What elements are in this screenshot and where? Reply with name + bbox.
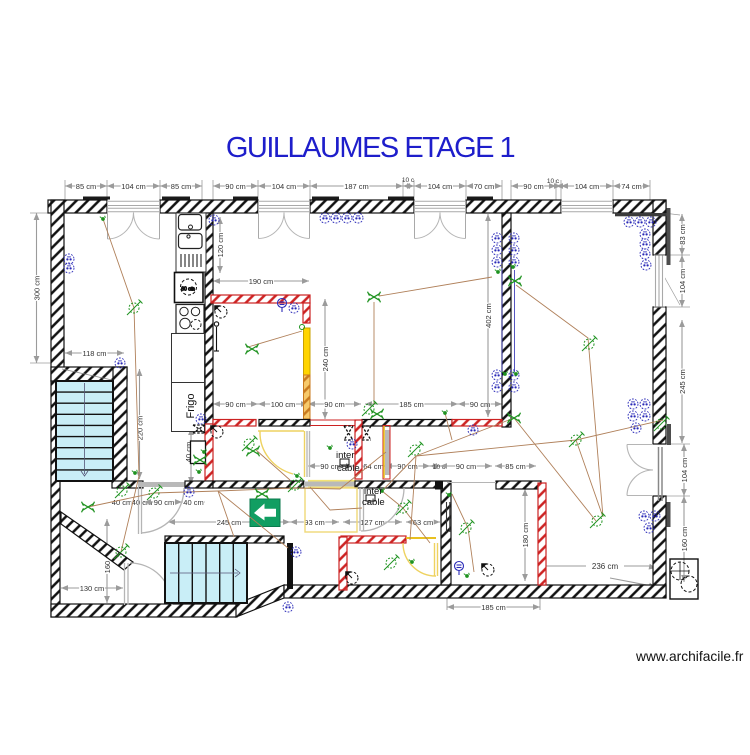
svg-text:74 cm: 74 cm xyxy=(621,182,641,191)
svg-text:90 cm: 90 cm xyxy=(470,400,490,409)
svg-text:90 cm: 90 cm xyxy=(225,400,245,409)
svg-text:60 cm: 60 cm xyxy=(181,287,195,293)
svg-text:190 cm: 190 cm xyxy=(249,277,274,286)
svg-text:10 c: 10 c xyxy=(547,178,560,185)
svg-text:240 cm: 240 cm xyxy=(321,347,330,372)
svg-text:63 cm: 63 cm xyxy=(413,518,433,527)
svg-text:130 cm: 130 cm xyxy=(80,584,105,593)
svg-text:104 cm: 104 cm xyxy=(428,182,453,191)
svg-text:187 cm: 187 cm xyxy=(344,182,369,191)
svg-text:104 cm: 104 cm xyxy=(678,269,687,294)
svg-text:220 cm: 220 cm xyxy=(136,416,145,441)
svg-text:104 cm: 104 cm xyxy=(121,182,146,191)
svg-text:104 cm: 104 cm xyxy=(272,182,297,191)
svg-text:118 cm: 118 cm xyxy=(82,349,106,358)
svg-text:90 cm: 90 cm xyxy=(154,498,174,507)
svg-text:64 cm: 64 cm xyxy=(363,462,383,471)
svg-text:100 cm: 100 cm xyxy=(271,400,296,409)
svg-text:93 cm: 93 cm xyxy=(304,518,324,527)
svg-text:90 cm: 90 cm xyxy=(324,400,344,409)
svg-text:90 cm: 90 cm xyxy=(456,462,476,471)
svg-text:245 cm: 245 cm xyxy=(678,369,687,394)
svg-text:www.archifacile.fr: www.archifacile.fr xyxy=(635,649,744,664)
svg-text:120 cm: 120 cm xyxy=(216,233,225,258)
svg-text:70 cm: 70 cm xyxy=(474,182,494,191)
svg-text:185 cm: 185 cm xyxy=(399,400,424,409)
svg-text:90 cm: 90 cm xyxy=(225,182,245,191)
svg-text:185 cm: 185 cm xyxy=(481,603,506,612)
svg-text:85 cm: 85 cm xyxy=(76,182,96,191)
svg-text:402 cm: 402 cm xyxy=(484,303,493,328)
svg-text:Frigo: Frigo xyxy=(185,393,197,418)
svg-text:90 cm: 90 cm xyxy=(523,182,543,191)
svg-text:10 c: 10 c xyxy=(402,177,415,184)
svg-text:300 cm: 300 cm xyxy=(33,276,42,301)
svg-text:85 cm: 85 cm xyxy=(505,462,525,471)
svg-text:180 cm: 180 cm xyxy=(521,523,530,548)
svg-text:85 cm: 85 cm xyxy=(171,182,191,191)
svg-text:160 cm: 160 cm xyxy=(680,527,689,552)
svg-text:40 cm: 40 cm xyxy=(183,498,203,507)
svg-text:83 cm: 83 cm xyxy=(678,224,687,244)
svg-text:GUILLAUMES ETAGE 1: GUILLAUMES ETAGE 1 xyxy=(226,132,515,164)
svg-text:104 cm: 104 cm xyxy=(680,458,689,483)
svg-text:104 cm: 104 cm xyxy=(575,182,600,191)
svg-text:236 cm: 236 cm xyxy=(592,562,619,571)
